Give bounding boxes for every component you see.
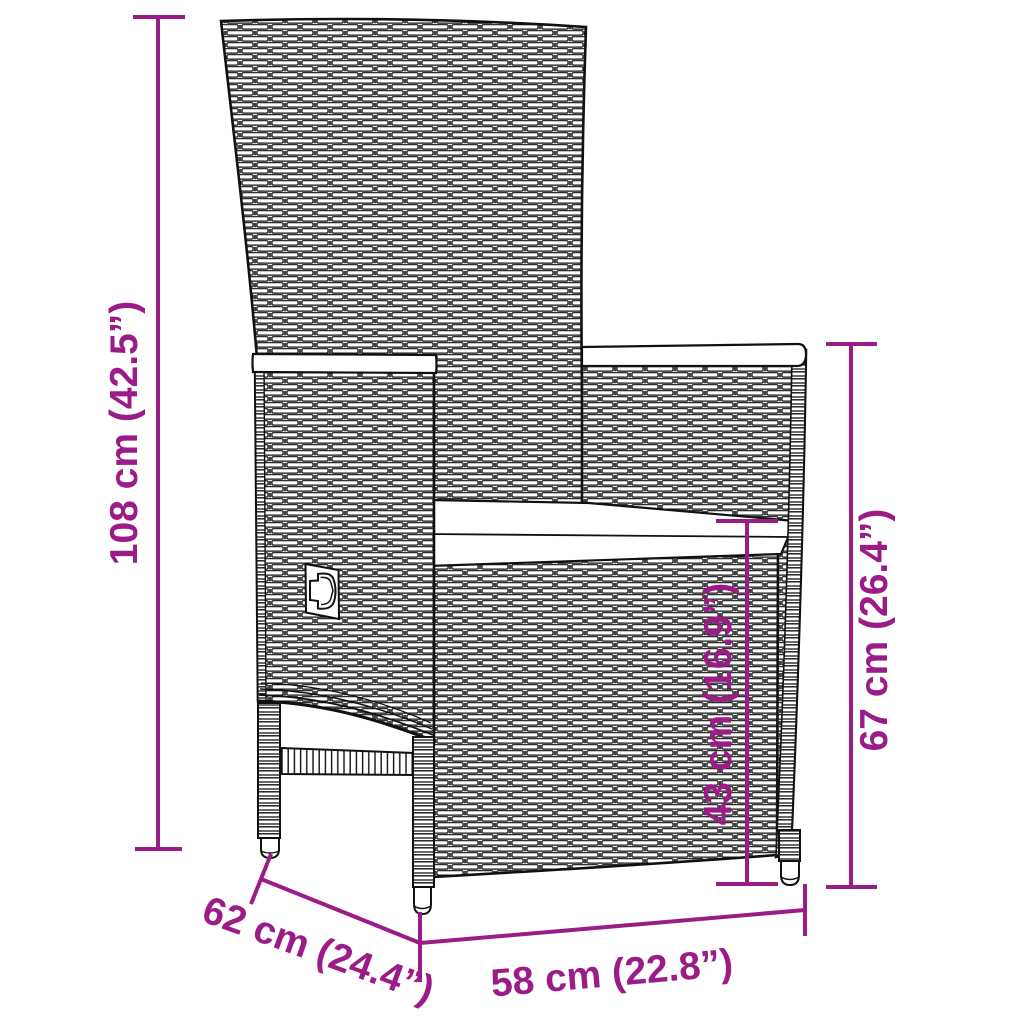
svg-text:43 cm (16.9”): 43 cm (16.9”) [697,583,740,826]
svg-text:67 cm (26.4”): 67 cm (26.4”) [853,509,896,752]
svg-text:62 cm (24.4”): 62 cm (24.4”) [197,889,440,1012]
svg-text:108 cm (42.5”): 108 cm (42.5”) [103,301,146,566]
svg-text:58 cm (22.8”): 58 cm (22.8”) [489,942,735,1006]
